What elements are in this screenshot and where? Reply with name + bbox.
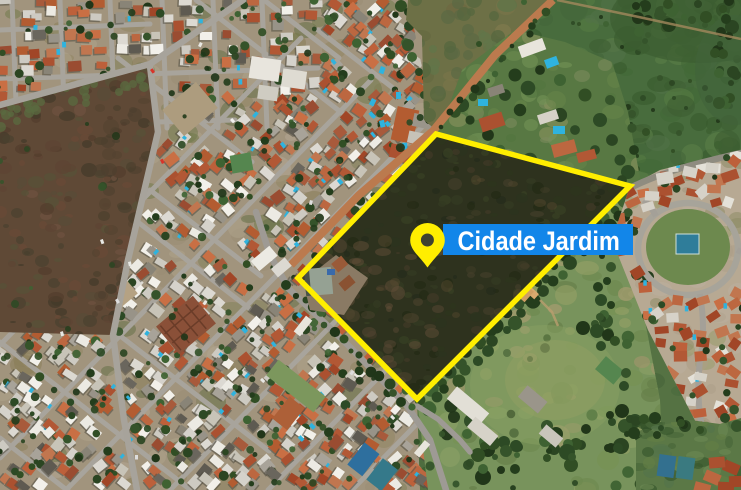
svg-text:Cidade Jardim: Cidade Jardim: [458, 227, 620, 257]
